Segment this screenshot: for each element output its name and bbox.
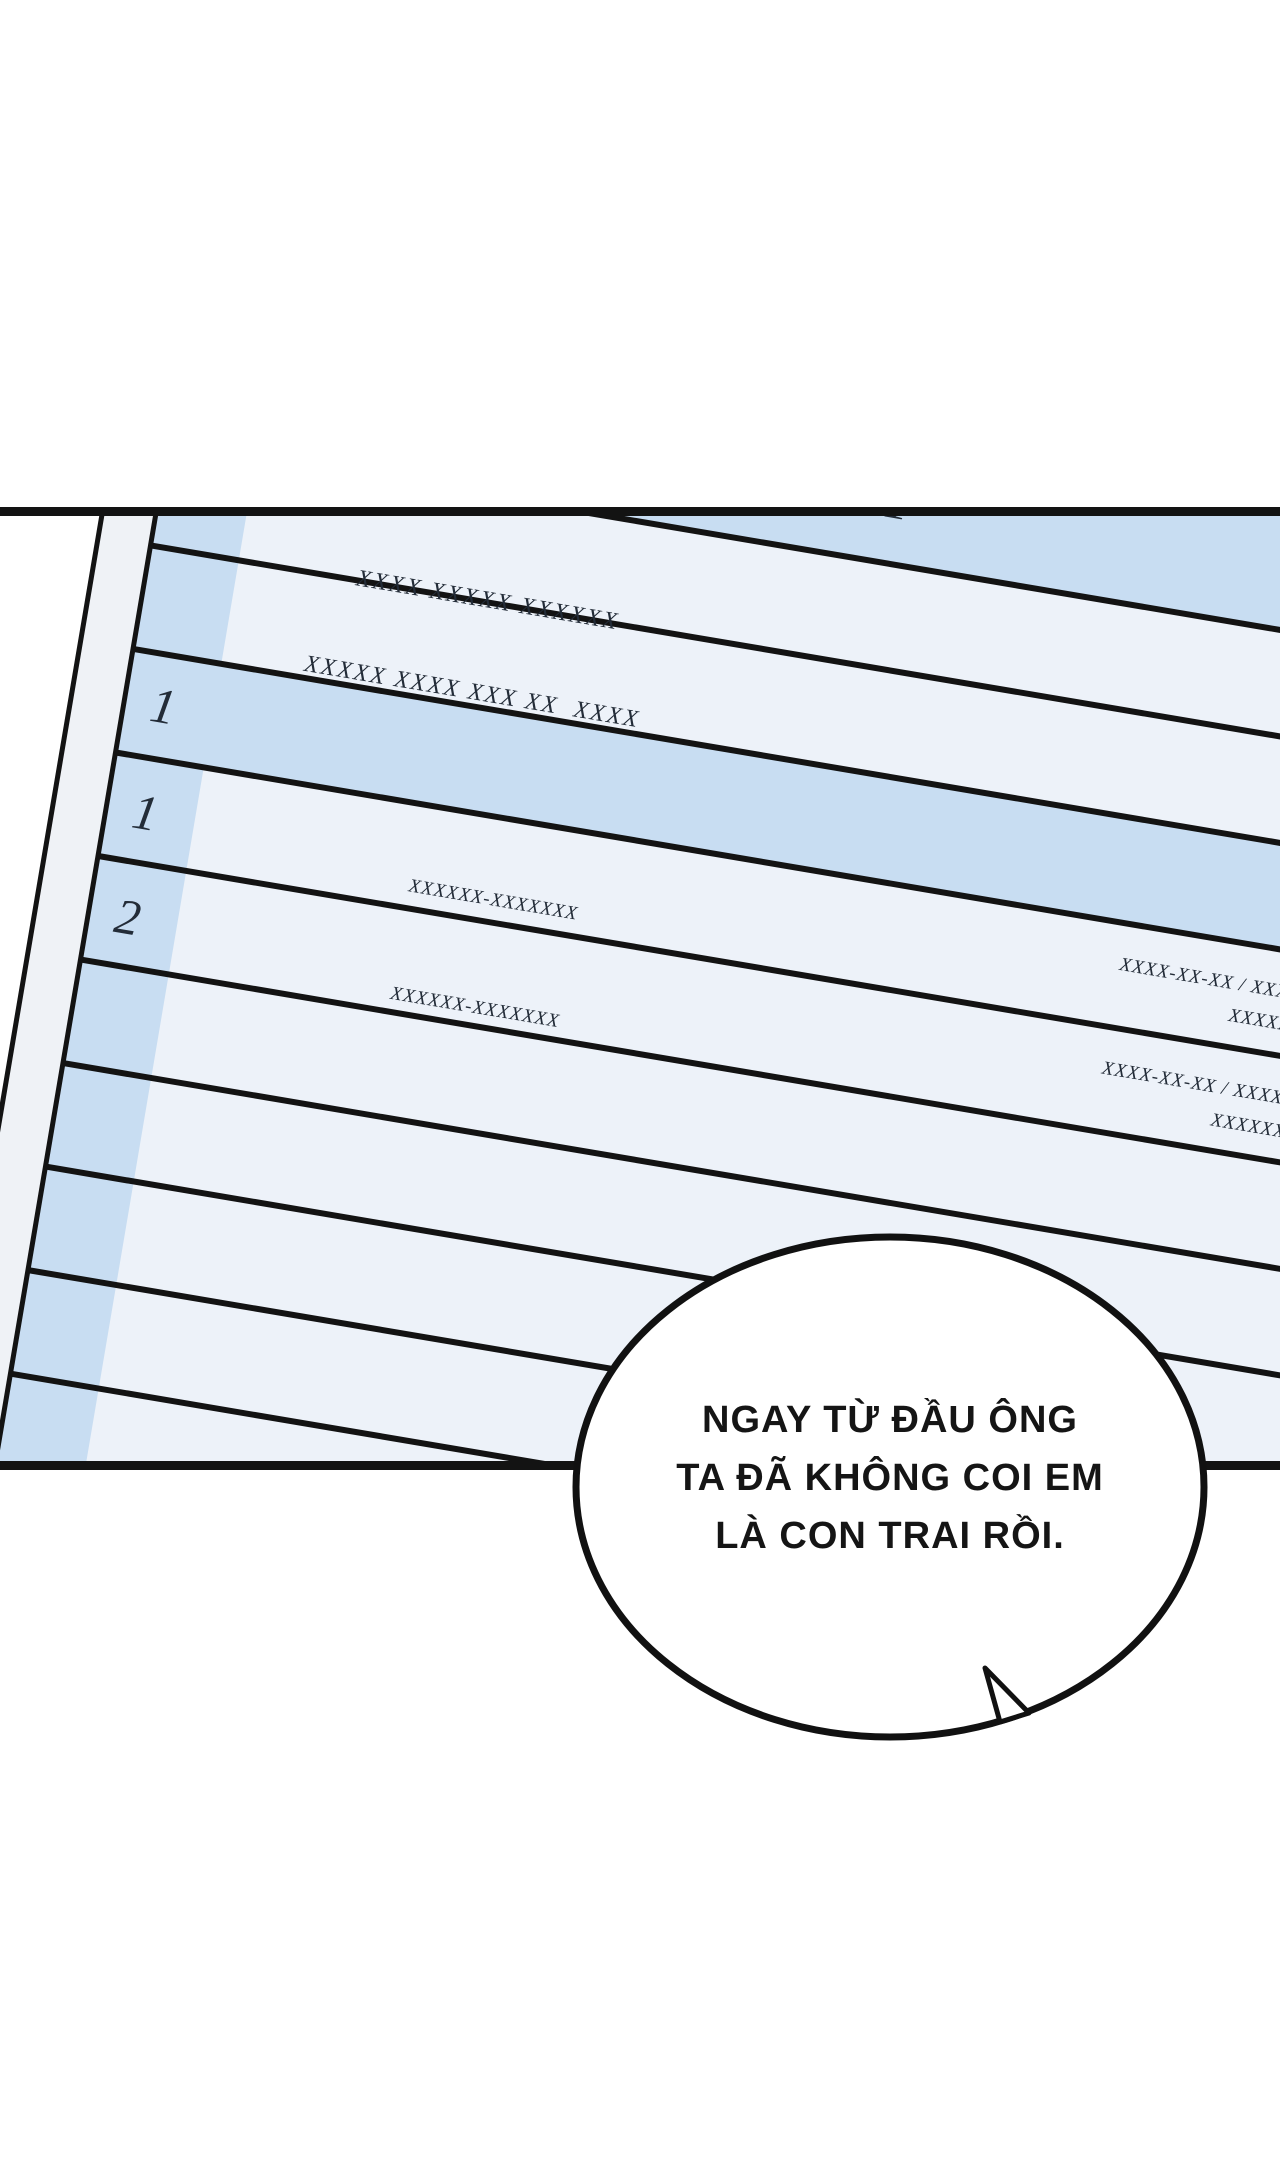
bubble-line3: LÀ CON TRAI RỒI. — [640, 1507, 1140, 1565]
bubble-line1: NGAY TỪ ĐẦU ÔNG — [640, 1391, 1140, 1449]
webtoon-page: { "document": { "header": { "index_fragm… — [0, 0, 1280, 2184]
header-line2: XXXXX XXXX XXX XX XXXX — [297, 648, 647, 737]
panel-top-border — [0, 507, 1280, 516]
header-line1: XXXX XXXXX XXXXXX — [312, 556, 662, 645]
bubble-line2: TA ĐÃ KHÔNG COI EM — [640, 1449, 1140, 1507]
speech-bubble-text: NGAY TỪ ĐẦU ÔNG TA ĐÃ KHÔNG COI EM LÀ CO… — [640, 1391, 1140, 1565]
